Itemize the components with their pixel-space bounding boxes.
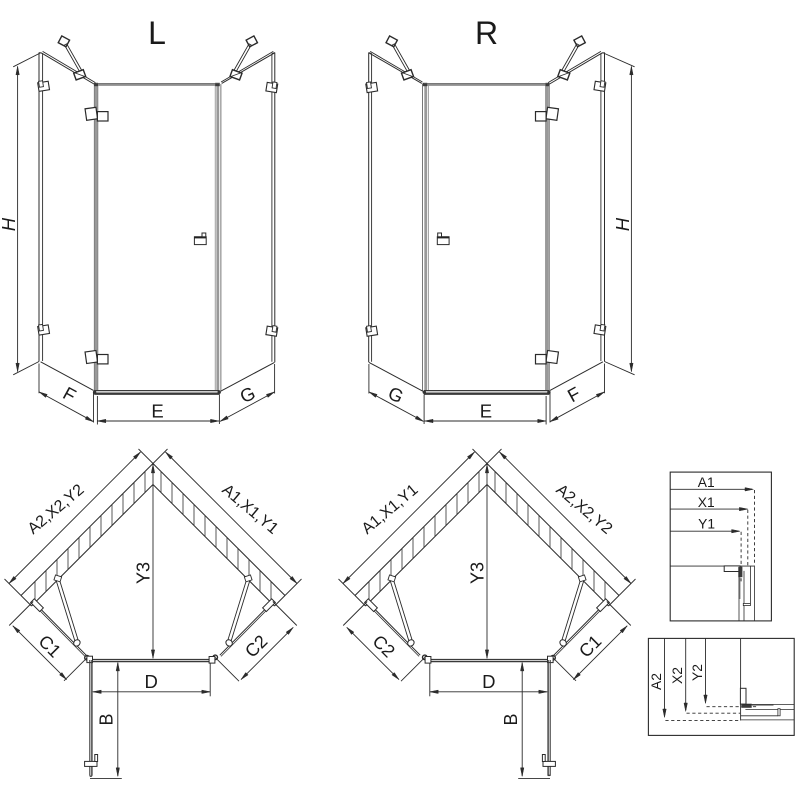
- svg-text:Y2: Y2: [690, 664, 705, 681]
- svg-text:X2: X2: [670, 667, 685, 684]
- svg-text:R: R: [475, 15, 498, 51]
- svg-text:D: D: [482, 671, 495, 692]
- svg-text:B: B: [501, 713, 521, 725]
- svg-text:E: E: [151, 401, 163, 422]
- svg-text:D: D: [145, 671, 158, 692]
- svg-text:A1: A1: [698, 475, 715, 490]
- svg-text:Y3: Y3: [134, 562, 154, 584]
- svg-text:A2: A2: [649, 673, 664, 690]
- svg-text:Y1: Y1: [698, 517, 715, 532]
- svg-text:E: E: [480, 401, 492, 422]
- svg-text:Y3: Y3: [468, 562, 488, 584]
- svg-text:B: B: [97, 713, 117, 725]
- svg-text:X1: X1: [698, 495, 715, 510]
- svg-text:L: L: [148, 15, 166, 51]
- svg-text:H: H: [612, 217, 633, 231]
- svg-text:H: H: [0, 217, 19, 231]
